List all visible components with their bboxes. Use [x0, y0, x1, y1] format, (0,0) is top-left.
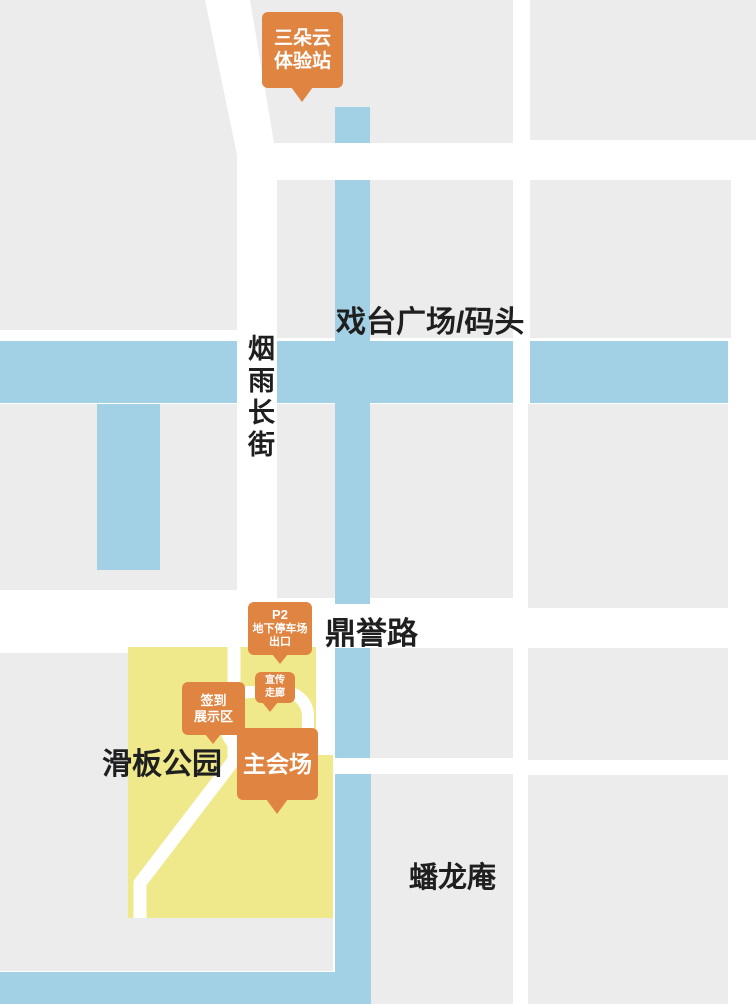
label-stage-plaza: 戏台广场/码头	[336, 297, 524, 341]
street-strip	[316, 647, 335, 755]
marker-main-venue: 主会场	[237, 728, 318, 800]
marker-promo-corridor: 宣传 走廊	[255, 672, 295, 703]
marker-line: 签到	[200, 693, 226, 709]
marker-line: 三朵云	[274, 27, 331, 50]
marker-pointer	[266, 799, 288, 814]
label-yanyu-street: 烟雨长街	[240, 334, 279, 462]
marker-line: 地下停车场	[253, 623, 308, 636]
marker-pointer	[272, 654, 288, 664]
marker-cloud-experience-station: 三朵云 体验站	[262, 12, 343, 88]
marker-line: P2	[272, 607, 288, 623]
label-skate-park: 滑板公园	[102, 739, 222, 783]
marker-line: 宣传	[265, 675, 285, 687]
label-panlong-temple: 蟠龙庵	[409, 854, 496, 896]
marker-line: 体验站	[274, 50, 331, 73]
marker-signin-display-area: 签到 展示区	[182, 682, 245, 735]
marker-p2-parking-exit: P2 地下停车场 出口	[248, 602, 312, 655]
marker-line: 主会场	[243, 750, 312, 778]
label-dingyu-road: 鼎誉路	[325, 608, 418, 653]
map-canvas: 戏台广场/码头 烟雨长街 鼎誉路 滑板公园 蟠龙庵 三朵云 体验站 P2 地下停…	[0, 0, 756, 1004]
park-path	[0, 0, 756, 1004]
marker-line: 展示区	[194, 709, 233, 725]
marker-line: 走廊	[265, 688, 285, 700]
marker-pointer	[262, 702, 278, 712]
marker-pointer	[205, 734, 221, 744]
marker-line: 出口	[269, 636, 291, 649]
marker-pointer	[291, 87, 313, 102]
